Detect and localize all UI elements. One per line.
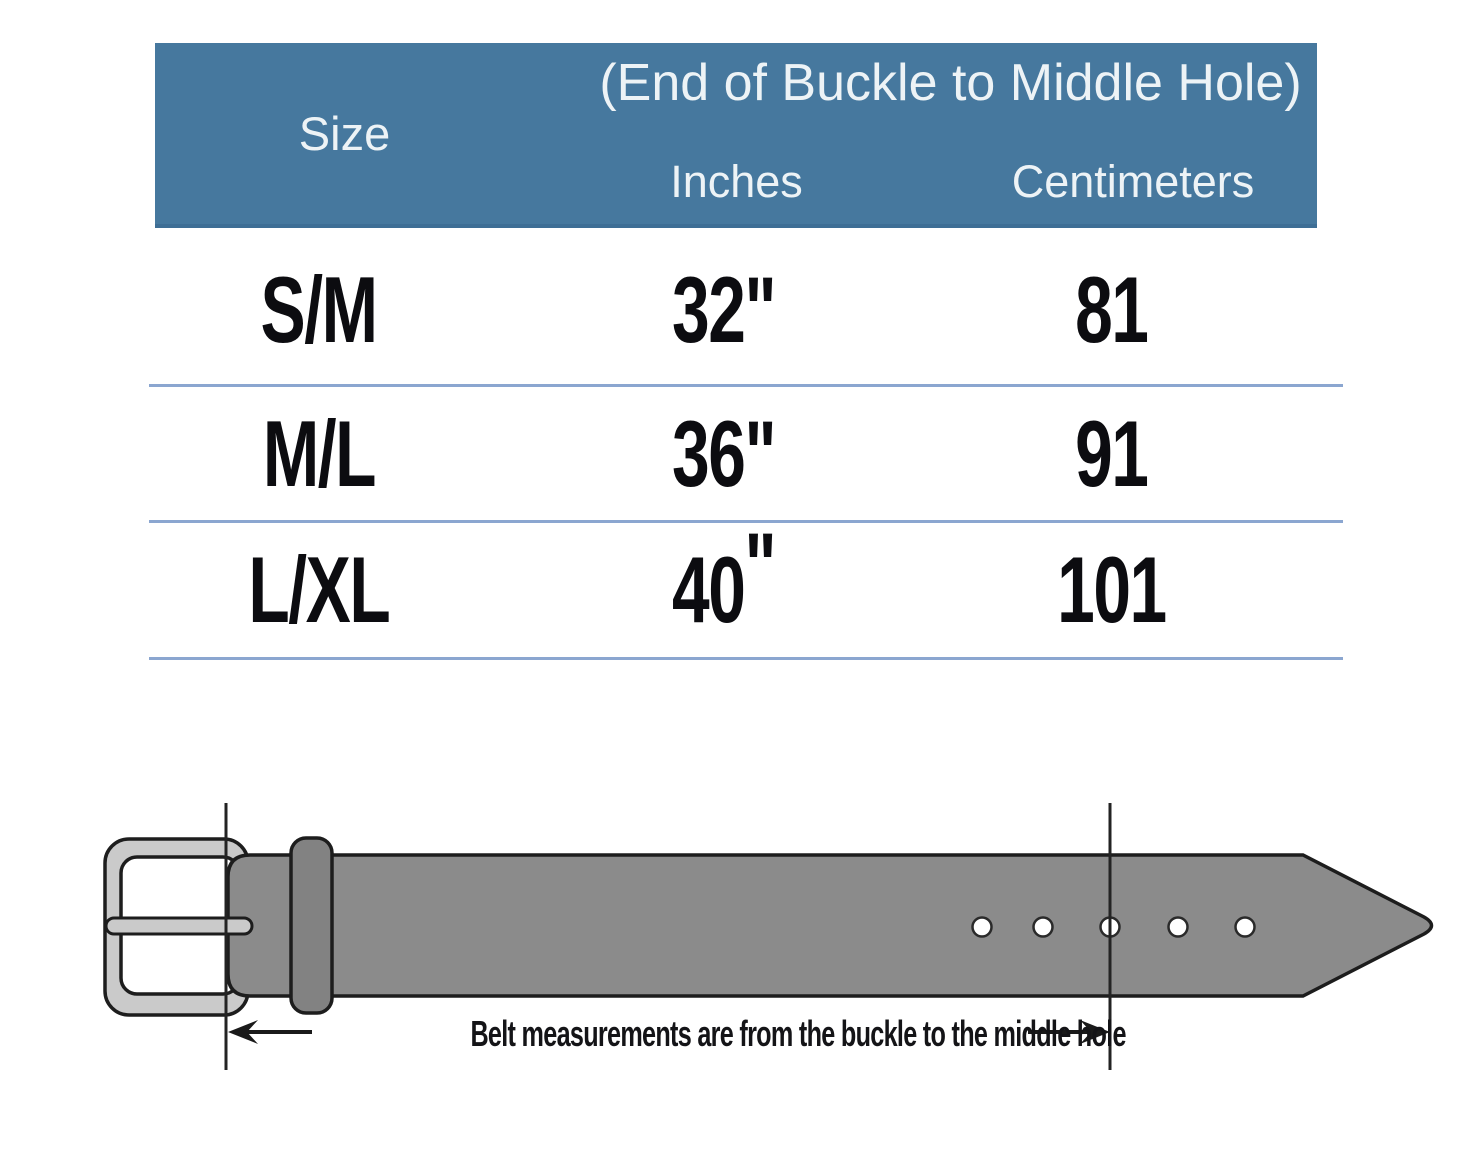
belt-hole xyxy=(1169,918,1188,937)
centimeters-value: 81 xyxy=(939,228,1343,384)
table-row: L/XL40"101 xyxy=(149,523,1343,660)
measurement-group-label: (End of Buckle to Middle Hole) xyxy=(489,53,1317,113)
size-value: L/XL xyxy=(149,523,489,657)
centimeters-value: 101 xyxy=(939,523,1343,657)
inches-value: 40" xyxy=(489,523,939,657)
inches-value: 32" xyxy=(489,228,939,384)
belt-keeper-loop xyxy=(291,838,332,1013)
belt-size-table: Size (End of Buckle to Middle Hole) Inch… xyxy=(149,43,1343,660)
buckle-prong xyxy=(106,918,252,934)
size-column-header: Size xyxy=(155,43,489,224)
belt-hole xyxy=(1236,918,1255,937)
centimeters-value: 91 xyxy=(939,387,1343,520)
unit-header-row: Inches Centimeters xyxy=(489,156,1317,208)
belt-measurement-caption: Belt measurements are from the buckle to… xyxy=(330,1014,1010,1054)
table-row: S/M32"81 xyxy=(149,228,1343,387)
belt-hole xyxy=(973,918,992,937)
size-value: M/L xyxy=(149,387,489,520)
size-table-header: Size (End of Buckle to Middle Hole) Inch… xyxy=(155,43,1317,228)
belt-hole xyxy=(1034,918,1053,937)
inches-value: 36" xyxy=(489,387,939,520)
table-row: M/L36"91 xyxy=(149,387,1343,523)
inches-column-header: Inches xyxy=(489,156,969,208)
size-value: S/M xyxy=(149,228,489,384)
measurement-header-group: (End of Buckle to Middle Hole) Inches Ce… xyxy=(489,43,1317,224)
centimeters-column-header: Centimeters xyxy=(969,156,1317,208)
size-table-rows: S/M32"81M/L36"91L/XL40"101 xyxy=(149,228,1343,660)
